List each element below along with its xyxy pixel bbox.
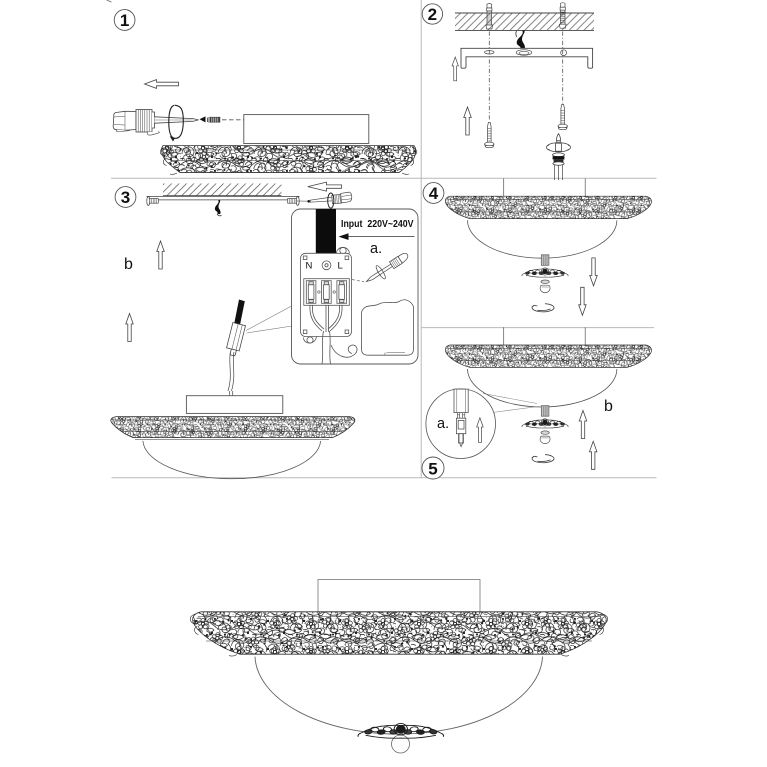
svg-text:L: L <box>338 261 343 272</box>
svg-text:a.: a. <box>370 241 382 257</box>
svg-text:5: 5 <box>428 460 437 479</box>
svg-text:Input 220V~240V: Input 220V~240V <box>341 219 414 230</box>
svg-text:3: 3 <box>121 188 130 207</box>
svg-text:b: b <box>124 256 133 273</box>
svg-text:2: 2 <box>428 5 437 24</box>
svg-text:a.: a. <box>437 416 449 432</box>
svg-text:1: 1 <box>120 11 129 30</box>
svg-text:N: N <box>306 261 313 272</box>
svg-text:b: b <box>604 398 613 415</box>
svg-text:4: 4 <box>429 184 439 203</box>
